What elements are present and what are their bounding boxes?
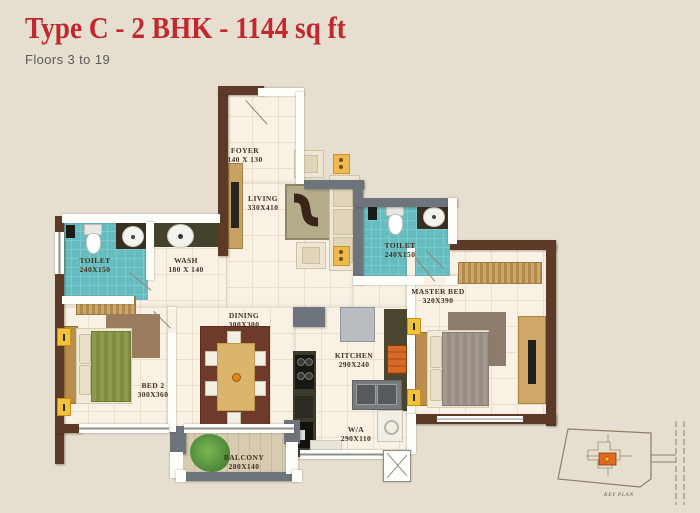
- side-table: [333, 246, 350, 266]
- living-rug: [285, 184, 331, 240]
- wall-segment: [407, 414, 416, 454]
- door-opening: [168, 309, 176, 333]
- wall-segment: [62, 214, 220, 223]
- room-label-toilet-left: TOILET 240X150: [60, 256, 130, 274]
- wall-segment: [546, 244, 556, 426]
- pillow: [79, 334, 91, 364]
- shower-fixture: [368, 207, 377, 220]
- wall-segment: [218, 88, 228, 256]
- wall-segment: [450, 240, 556, 250]
- kitchen-cabinet-orange: [387, 345, 407, 374]
- pillow: [430, 369, 442, 401]
- room-label-living: LIVING 330X410: [228, 194, 298, 212]
- balcony-post: [176, 470, 186, 482]
- room-name: MASTER BED: [398, 287, 478, 296]
- balcony-parapet: [184, 472, 296, 481]
- kitchen-sink: [356, 384, 376, 405]
- room-dim: 180 X 140: [151, 265, 221, 274]
- floor-plan: FOYER 140 X 130 LIVING 330X410 TOILET 24…: [0, 0, 700, 513]
- room-dim: 240X150: [365, 250, 435, 259]
- wall-segment: [355, 198, 457, 207]
- room-name: FOYER: [210, 146, 280, 155]
- wall-segment: [296, 92, 304, 184]
- room-dim: 320X390: [398, 296, 478, 305]
- wash-basin: [167, 224, 194, 248]
- pillow: [430, 336, 442, 368]
- window-marker: [407, 318, 421, 335]
- room-name: DINING: [209, 311, 279, 320]
- key-plan-road: [651, 421, 684, 505]
- window-marker: [57, 328, 71, 346]
- room-label-kitchen: KITCHEN 290X240: [319, 351, 389, 369]
- room-name: W/A: [321, 425, 391, 434]
- key-plan: KEY PLAN: [550, 416, 695, 510]
- balcony-post: [292, 470, 302, 482]
- master-tv: [528, 340, 536, 384]
- room-name: KITCHEN: [319, 351, 389, 360]
- wash-sink: [423, 207, 445, 227]
- window-marker: [407, 389, 421, 406]
- room-label-wa: W/A 290X110: [321, 425, 391, 443]
- fridge: [340, 307, 375, 342]
- room-dim: 240X150: [60, 265, 130, 274]
- room-name: BALCONY: [209, 453, 279, 462]
- room-label-foyer: FOYER 140 X 130: [210, 146, 280, 164]
- window: [437, 416, 523, 422]
- kitchen-appliance: [295, 396, 313, 418]
- master-wardrobe-top: [458, 262, 542, 284]
- balcony-slider: [184, 424, 294, 433]
- room-label-dining: DINING 300X300: [209, 311, 279, 329]
- key-plan-unit-dot: [605, 457, 609, 461]
- window: [300, 450, 384, 459]
- room-name: BED 2: [118, 381, 188, 390]
- room-label-toilet-right: TOILET 240X150: [365, 241, 435, 259]
- wash-sink: [122, 226, 144, 247]
- room-dim: 290X110: [321, 434, 391, 443]
- side-table: [333, 154, 350, 174]
- room-label-wash: WASH 180 X 140: [151, 256, 221, 274]
- room-name: TOILET: [365, 241, 435, 250]
- wall-segment: [448, 198, 457, 244]
- kitchen-sink: [377, 384, 397, 405]
- wall-segment: [62, 296, 134, 304]
- dining-table: [217, 343, 255, 411]
- shower-fixture: [66, 225, 75, 238]
- duct-shaft: [383, 450, 411, 482]
- toilet-bowl: [86, 233, 101, 254]
- window-marker: [57, 398, 71, 416]
- window: [79, 424, 169, 433]
- room-dim: 300X300: [209, 320, 279, 329]
- room-dim: 300X360: [118, 390, 188, 399]
- room-name: LIVING: [228, 194, 298, 203]
- room-dim: 280X140: [209, 462, 279, 471]
- room-label-bed-2: BED 2 300X360: [118, 381, 188, 399]
- wall-segment: [55, 424, 81, 433]
- toilet-bowl: [388, 214, 403, 235]
- wall-segment: [293, 307, 325, 327]
- room-dim: 330X410: [228, 203, 298, 212]
- room-dim: 140 X 130: [210, 155, 280, 164]
- stove: [295, 355, 314, 389]
- room-name: TOILET: [60, 256, 130, 265]
- room-label-master-bed: MASTER BED 320X390: [398, 287, 478, 305]
- wall-segment: [353, 180, 363, 284]
- key-plan-label: KEY PLAN: [603, 492, 634, 498]
- armchair: [296, 242, 326, 269]
- room-name: WASH: [151, 256, 221, 265]
- master-blanket: [442, 332, 489, 406]
- pillow: [79, 365, 91, 395]
- room-dim: 290X240: [319, 360, 389, 369]
- room-label-balcony: BALCONY 280X140: [209, 453, 279, 471]
